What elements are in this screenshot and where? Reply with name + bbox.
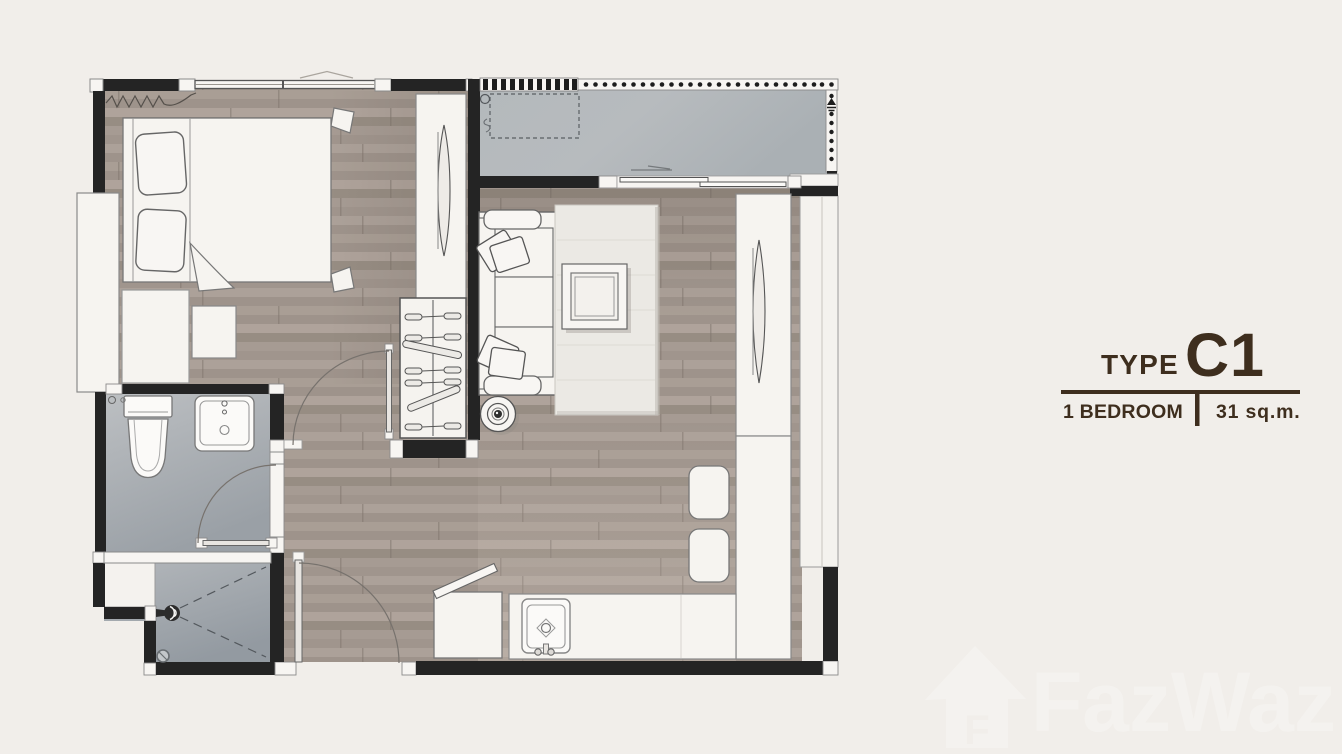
- svg-text:31 sq.m.: 31 sq.m.: [1216, 401, 1300, 423]
- svg-text:C1: C1: [1185, 321, 1265, 389]
- svg-text:FazWaz: FazWaz: [1031, 655, 1336, 749]
- svg-text:TYPE: TYPE: [1101, 349, 1179, 380]
- svg-text:1 BEDROOM: 1 BEDROOM: [1063, 401, 1183, 423]
- svg-text:F: F: [964, 706, 990, 753]
